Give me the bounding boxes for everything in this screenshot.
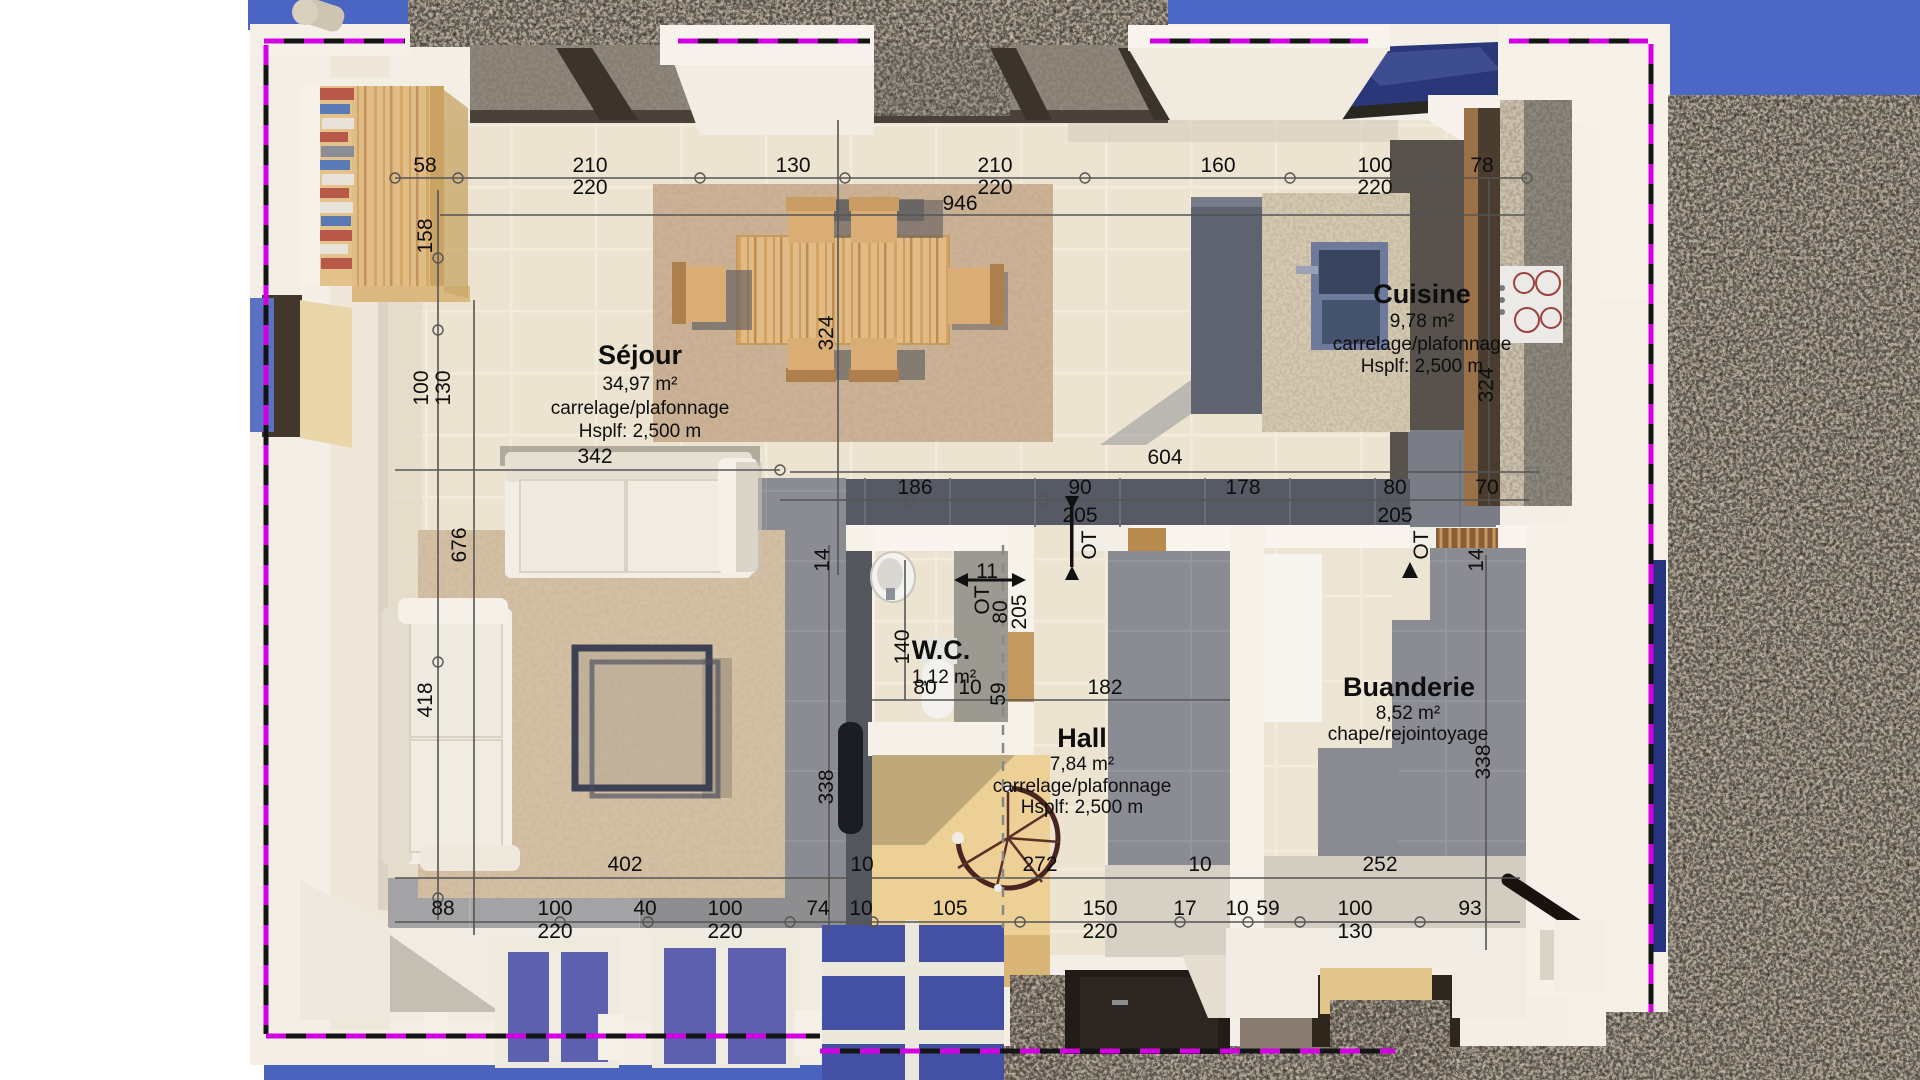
svg-text:676: 676 (448, 527, 471, 562)
svg-text:carrelage/plafonnage: carrelage/plafonnage (1333, 334, 1512, 355)
svg-text:40: 40 (633, 897, 656, 920)
svg-text:78: 78 (1470, 154, 1493, 177)
svg-text:11: 11 (976, 560, 998, 583)
svg-text:14: 14 (811, 548, 834, 572)
svg-text:10: 10 (1225, 897, 1248, 920)
svg-text:74: 74 (806, 897, 830, 920)
svg-text:carrelage/plafonnage: carrelage/plafonnage (551, 398, 730, 419)
svg-text:418: 418 (414, 682, 437, 717)
svg-text:OT: OT (1078, 530, 1101, 559)
svg-text:10: 10 (1188, 853, 1211, 876)
svg-text:80: 80 (1383, 476, 1406, 499)
svg-text:59: 59 (1256, 897, 1279, 920)
svg-text:205: 205 (1062, 504, 1097, 527)
svg-text:70: 70 (1475, 476, 1498, 499)
svg-text:220: 220 (1357, 176, 1392, 199)
svg-text:604: 604 (1147, 446, 1182, 469)
svg-text:90: 90 (1068, 476, 1091, 499)
svg-text:100: 100 (410, 370, 433, 405)
svg-text:220: 220 (537, 920, 572, 943)
svg-text:Buanderie: Buanderie (1343, 672, 1475, 702)
svg-text:205: 205 (1377, 504, 1412, 527)
svg-text:205: 205 (1008, 594, 1031, 629)
svg-text:100: 100 (1357, 154, 1392, 177)
svg-text:10: 10 (850, 853, 873, 876)
svg-text:130: 130 (775, 154, 810, 177)
svg-text:7,84 m²: 7,84 m² (1050, 754, 1114, 775)
svg-text:186: 186 (897, 476, 932, 499)
svg-text:carrelage/plafonnage: carrelage/plafonnage (993, 776, 1172, 797)
svg-text:Séjour: Séjour (598, 340, 683, 370)
svg-text:220: 220 (977, 176, 1012, 199)
svg-text:34,97 m²: 34,97 m² (603, 374, 678, 395)
svg-text:220: 220 (572, 176, 607, 199)
svg-text:100: 100 (537, 897, 572, 920)
svg-text:Hsplf: 2,500 m: Hsplf: 2,500 m (579, 421, 702, 442)
svg-text:210: 210 (572, 154, 607, 177)
svg-text:220: 220 (707, 920, 742, 943)
svg-text:210: 210 (977, 154, 1012, 177)
svg-text:140: 140 (891, 629, 914, 664)
svg-text:88: 88 (431, 897, 454, 920)
svg-text:100: 100 (1337, 897, 1372, 920)
svg-text:59: 59 (987, 682, 1010, 705)
svg-text:130: 130 (432, 370, 455, 405)
svg-text:100: 100 (707, 897, 742, 920)
svg-text:272: 272 (1022, 853, 1057, 876)
svg-text:402: 402 (607, 853, 642, 876)
svg-text:220: 220 (1082, 920, 1117, 943)
svg-text:160: 160 (1200, 154, 1235, 177)
svg-text:Hsplf: 2,500 m: Hsplf: 2,500 m (1021, 797, 1144, 818)
svg-text:1,12 m²: 1,12 m² (912, 667, 976, 688)
svg-text:8,52 m²: 8,52 m² (1376, 703, 1440, 724)
svg-text:338: 338 (815, 769, 838, 804)
svg-text:324: 324 (815, 315, 838, 350)
svg-text:252: 252 (1362, 853, 1397, 876)
svg-text:93: 93 (1458, 897, 1481, 920)
svg-text:14: 14 (1465, 548, 1488, 572)
svg-text:182: 182 (1087, 676, 1122, 699)
svg-text:338: 338 (1472, 744, 1495, 779)
svg-text:58: 58 (413, 154, 436, 177)
svg-text:Cuisine: Cuisine (1373, 279, 1471, 309)
svg-text:105: 105 (932, 897, 967, 920)
svg-text:158: 158 (414, 218, 437, 253)
svg-text:chape/rejointoyage: chape/rejointoyage (1328, 724, 1489, 745)
svg-text:17: 17 (1173, 897, 1196, 920)
svg-text:342: 342 (577, 445, 612, 468)
svg-text:150: 150 (1082, 897, 1117, 920)
svg-text:178: 178 (1225, 476, 1260, 499)
svg-text:130: 130 (1337, 920, 1372, 943)
svg-text:W.C.: W.C. (912, 635, 971, 665)
svg-text:Hsplf: 2,500 m: Hsplf: 2,500 m (1361, 356, 1484, 377)
svg-text:946: 946 (942, 192, 977, 215)
svg-text:10: 10 (849, 897, 872, 920)
svg-text:9,78 m²: 9,78 m² (1390, 311, 1454, 332)
svg-text:Hall: Hall (1057, 723, 1107, 753)
svg-text:OT: OT (1410, 530, 1433, 559)
